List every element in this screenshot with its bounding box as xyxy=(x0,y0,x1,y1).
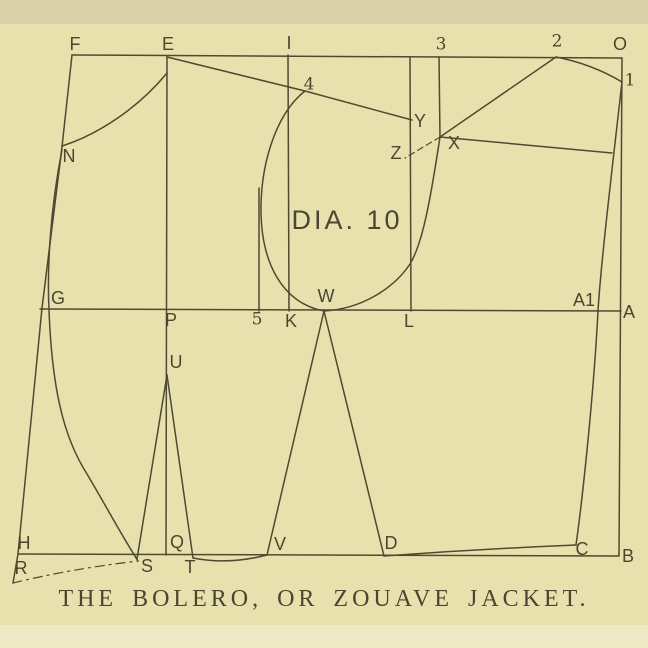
line-X-sideseam xyxy=(440,137,612,153)
point-label-2: 2 xyxy=(552,32,563,52)
point-label-Z: Z xyxy=(391,143,402,163)
vertical-line-I-K xyxy=(288,55,289,311)
point-label-X: X xyxy=(448,133,460,153)
dart-W-left-leg xyxy=(267,311,324,555)
point-label-W: W xyxy=(318,286,335,306)
point-label-5: 5 xyxy=(252,310,263,330)
vertical-line-Y-Z-L xyxy=(410,57,411,311)
vertical-line-E-P-Q xyxy=(166,57,167,555)
hem-curve-D-C xyxy=(384,545,576,556)
point-label-Q: Q xyxy=(170,532,184,552)
point-label-V: V xyxy=(274,534,286,554)
vertical-line-3-X xyxy=(439,57,440,137)
pattern-diagram: DIA. 10 FEI32O14NYZXGWA1P5KLAUHQVDCBRST xyxy=(0,0,648,648)
point-label-F: F xyxy=(70,34,81,54)
point-label-G: G xyxy=(51,288,65,308)
point-label-D: D xyxy=(385,533,398,553)
point-label-K: K xyxy=(285,311,297,331)
point-label-Y: Y xyxy=(414,111,426,131)
shoulder-line-E-4-Y xyxy=(167,57,412,120)
point-label-E: E xyxy=(162,34,174,54)
diagram-title: DIA. 10 xyxy=(291,205,402,235)
caption: THE BOLERO, OR ZOUAVE JACKET. xyxy=(0,586,648,613)
neck-curve-N-E xyxy=(62,73,167,146)
front-edge-curve-N-G-S xyxy=(48,150,138,561)
point-label-S: S xyxy=(141,556,153,576)
dart-U-left-leg xyxy=(137,375,167,559)
point-label-H: H xyxy=(18,533,31,553)
point-label-I: I xyxy=(286,33,291,53)
point-label-L: L xyxy=(404,311,414,331)
point-labels: FEI32O14NYZXGWA1P5KLAUHQVDCBRST xyxy=(15,32,636,578)
waist-line xyxy=(18,554,619,556)
hem-curve-T-V xyxy=(193,555,267,561)
point-label-4: 4 xyxy=(304,75,315,95)
top-line xyxy=(72,55,622,58)
point-label-A1: A1 xyxy=(573,290,595,310)
dashed-curve-R-S xyxy=(13,561,138,583)
point-label-P: P xyxy=(165,310,177,330)
point-label-U: U xyxy=(170,352,183,372)
dart-W-right-leg xyxy=(324,311,384,556)
point-label-C: C xyxy=(576,539,589,559)
point-label-B: B xyxy=(622,546,634,566)
dart-U-right-leg xyxy=(167,375,193,558)
point-label-3: 3 xyxy=(436,35,447,55)
point-label-R: R xyxy=(15,558,28,578)
point-label-1: 1 xyxy=(625,71,636,91)
right-edge-line xyxy=(619,58,622,556)
point-label-T: T xyxy=(185,557,196,577)
curve-2-1 xyxy=(556,57,622,82)
point-label-A: A xyxy=(623,302,635,322)
line-X-2 xyxy=(440,57,556,137)
front-construction-line xyxy=(13,55,72,583)
point-label-O: O xyxy=(613,34,627,54)
point-label-N: N xyxy=(63,146,76,166)
